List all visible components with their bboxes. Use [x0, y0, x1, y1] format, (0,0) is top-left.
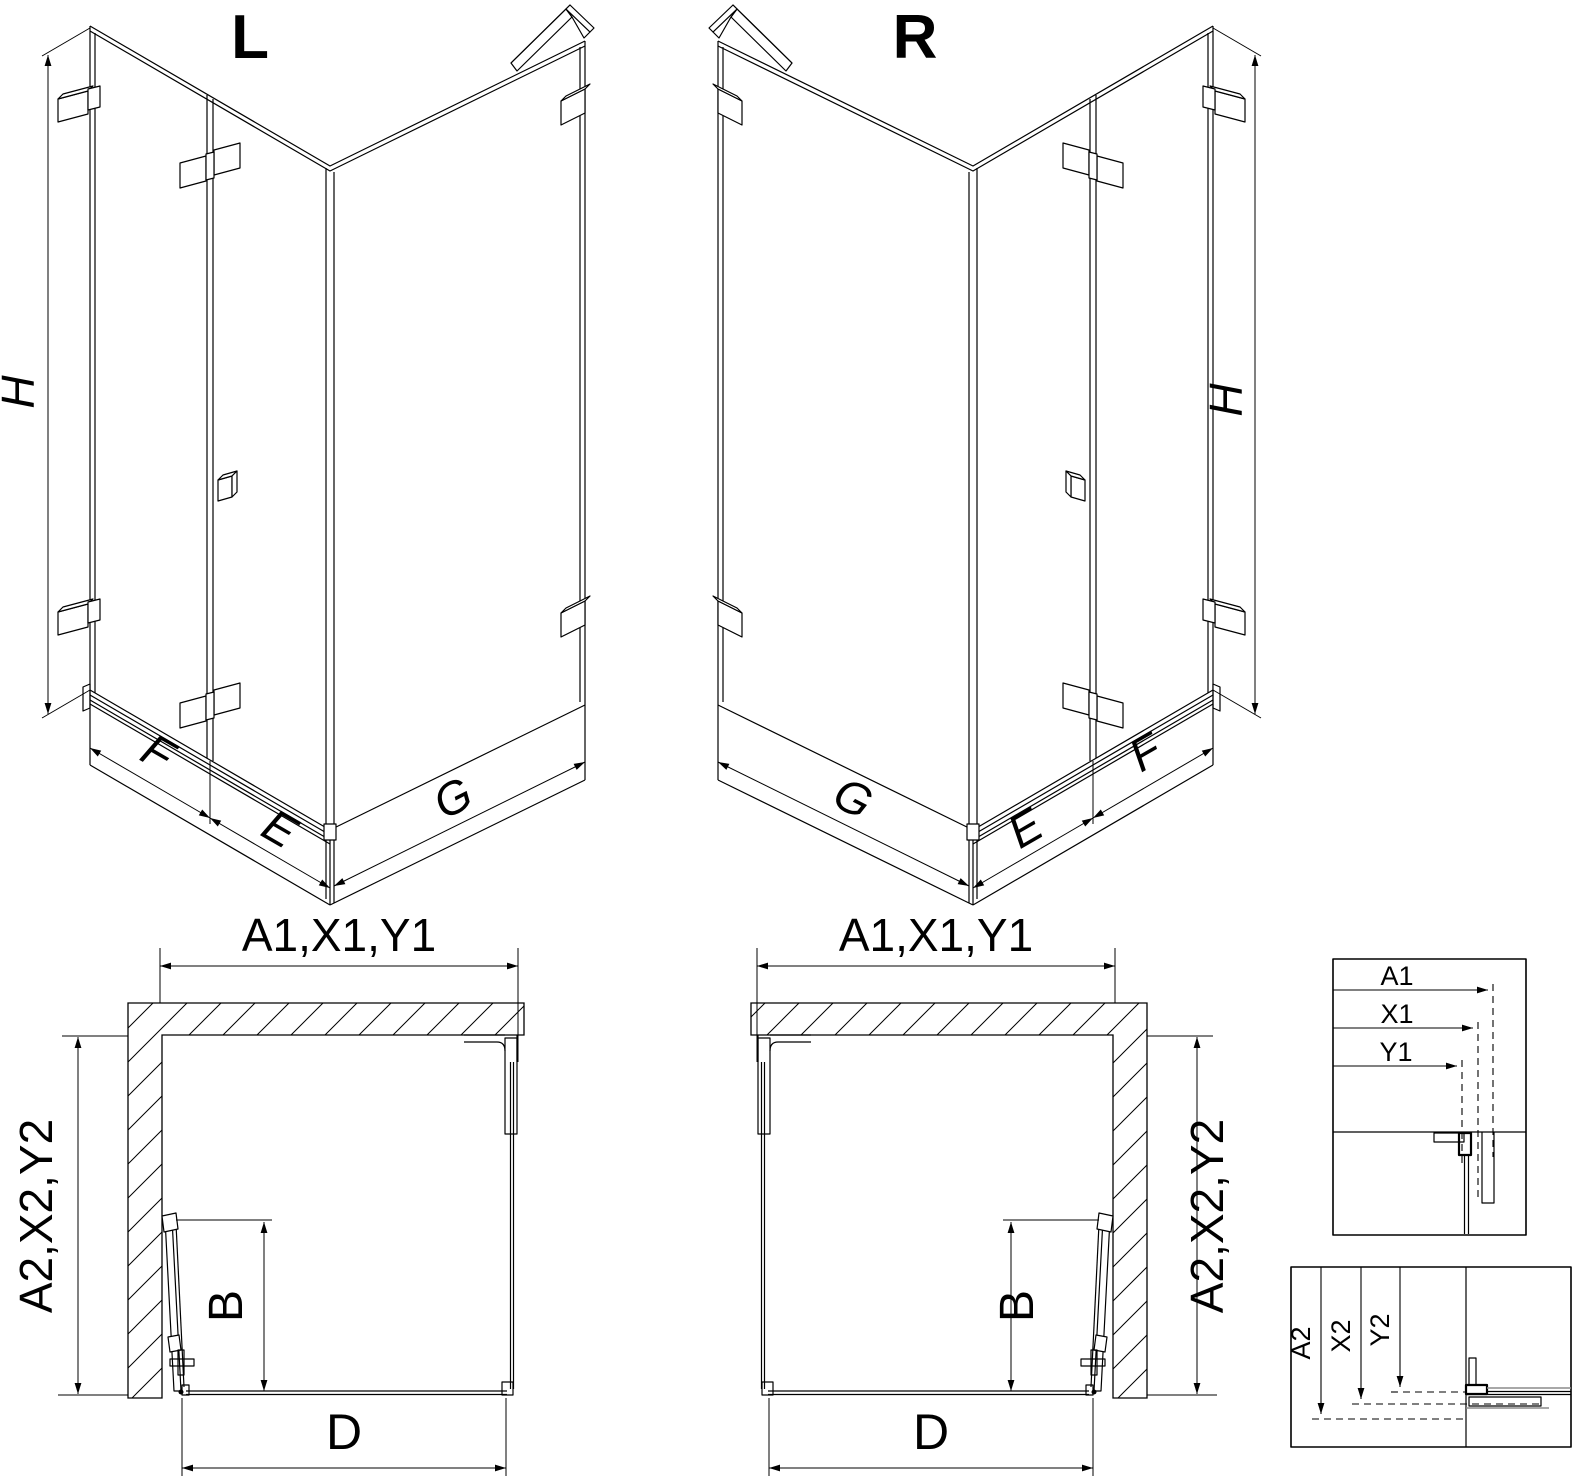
entry-dim-label-right-plan: B [991, 1290, 1044, 1322]
inner-panel-dim-left: E [254, 798, 308, 859]
door-panel-dim-right: F [1120, 721, 1173, 782]
detail-dim-a2: A2 [1286, 1326, 1316, 1359]
top-dim-label-right-plan: A1,X1,Y1 [839, 909, 1033, 961]
iso-view-right: R H F E G [709, 3, 1261, 905]
depth-dim-label-left-plan: A2,X2,Y2 [10, 1119, 62, 1313]
detail-top-dimensions: A1 X1 Y1 [1333, 959, 1526, 1235]
door-panel-dim-left: F [133, 723, 186, 784]
entry-dim-label-left-plan: B [200, 1290, 253, 1322]
wall-section-right-plan [751, 1003, 1147, 1398]
detail-dim-x1: X1 [1380, 999, 1413, 1029]
wall-section-left-plan [128, 1003, 524, 1398]
detail-top-frame [1333, 959, 1526, 1235]
iso-right-geometry [709, 5, 1261, 905]
detail-bottom-frame [1291, 1267, 1571, 1447]
iso-view-left: L H F E G [0, 3, 594, 905]
inner-panel-dim-right: E [999, 797, 1053, 858]
front-dim-label-right-plan: D [913, 1404, 949, 1460]
depth-dim-label-right-plan: A2,X2,Y2 [1181, 1119, 1233, 1313]
height-dim-label-right: H [1200, 383, 1252, 417]
plan-view-right: A1,X1,Y1 A2,X2,Y2 B D [751, 909, 1233, 1476]
plan-view-left: A1,X1,Y1 A2,X2,Y2 B D [10, 909, 524, 1476]
detail-dim-x2: X2 [1326, 1319, 1356, 1352]
detail-dim-y1: Y1 [1379, 1037, 1412, 1067]
height-dim-label-left: H [0, 375, 44, 409]
variant-label-left: L [231, 3, 269, 72]
shower-enclosure-dimension-diagram: L H F E G R H F E G A1,X1,Y1 A2,X2,Y2 B … [0, 0, 1581, 1479]
iso-left-geometry [42, 5, 594, 905]
detail-bottom-dimensions: A2 X2 Y2 [1286, 1267, 1571, 1447]
detail-dim-y2: Y2 [1365, 1313, 1395, 1346]
technical-drawing-canvas: L H F E G R H F E G A1,X1,Y1 A2,X2,Y2 B … [0, 0, 1581, 1479]
side-panel-dim-left: G [425, 766, 480, 829]
detail-dim-a1: A1 [1380, 961, 1413, 991]
variant-label-right: R [893, 3, 938, 72]
top-dim-label-left-plan: A1,X1,Y1 [242, 909, 436, 961]
front-dim-label-left-plan: D [326, 1404, 362, 1460]
